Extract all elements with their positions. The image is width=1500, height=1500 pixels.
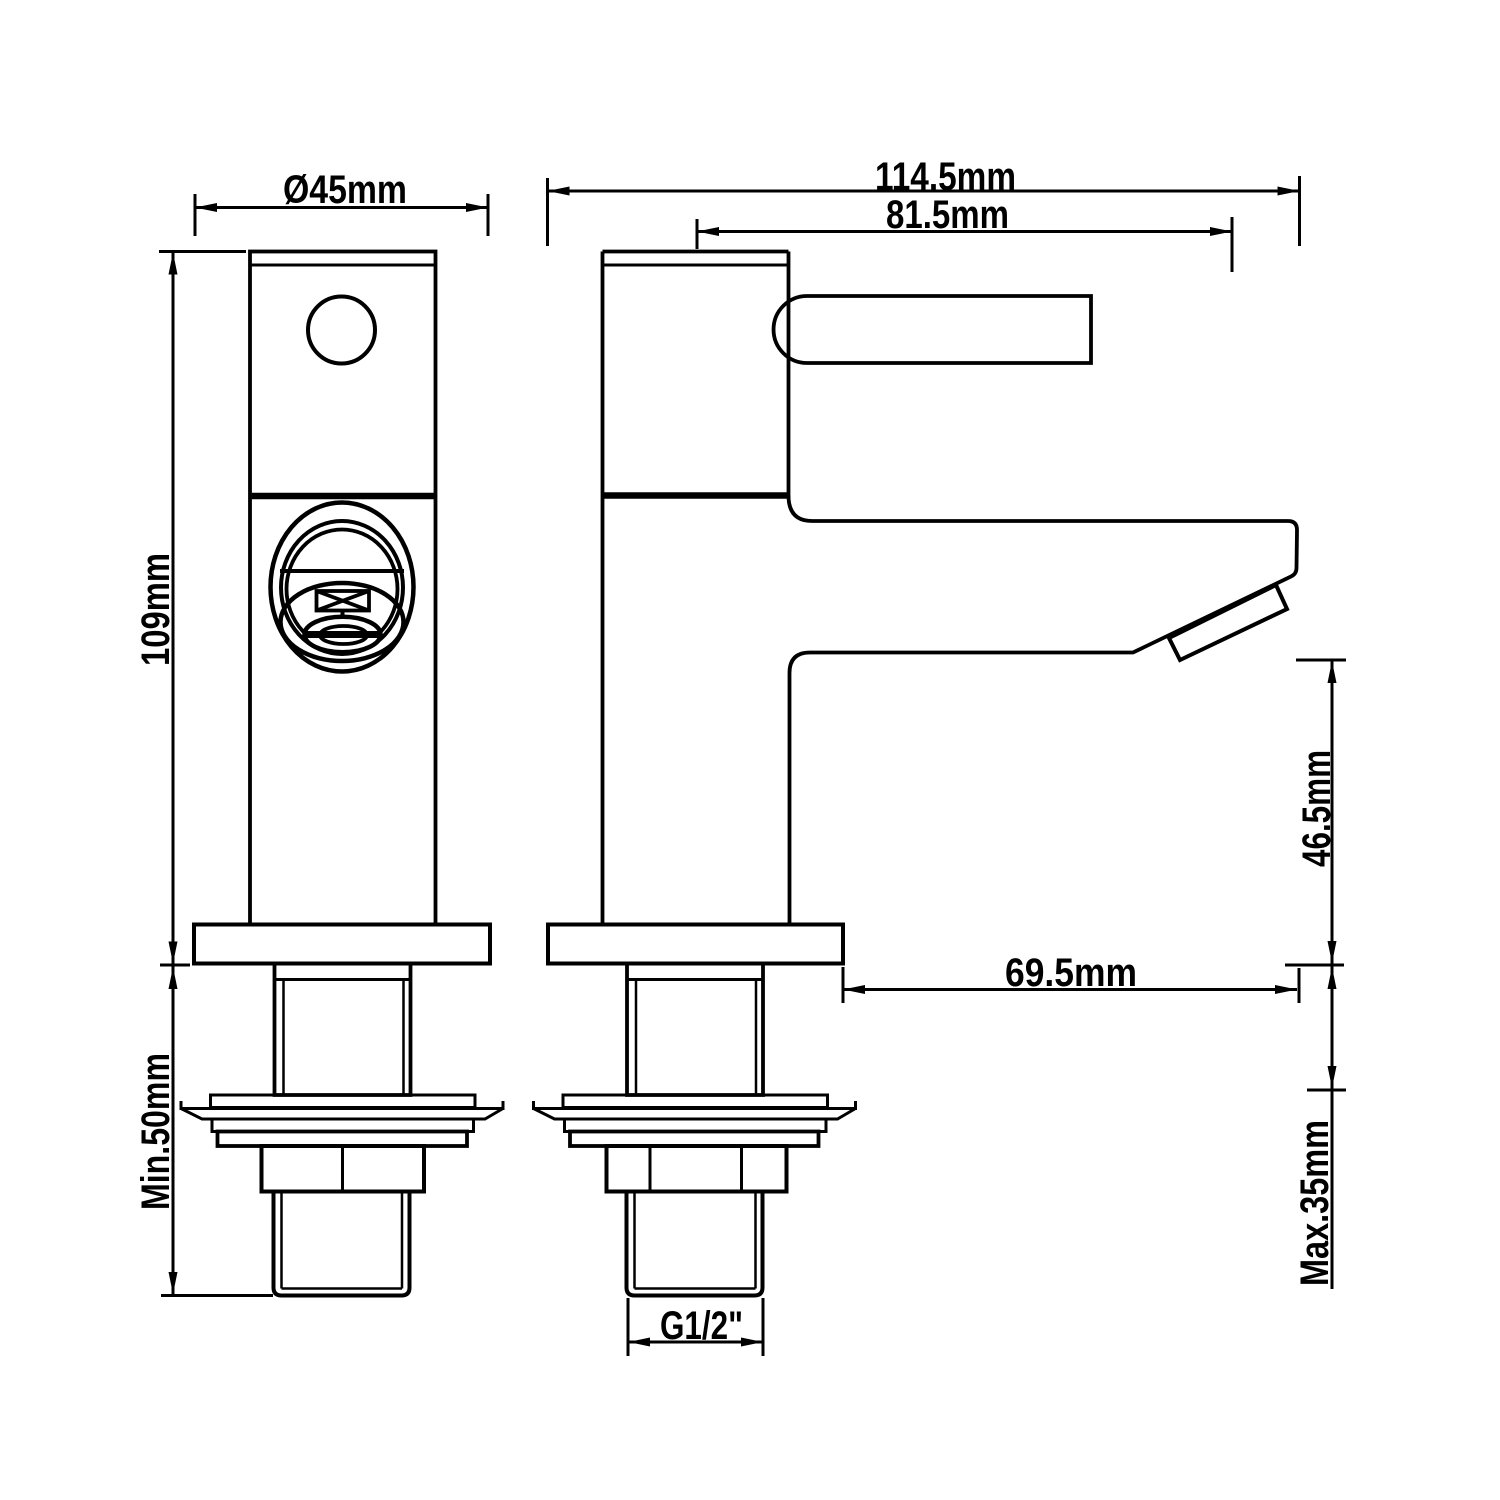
svg-text:Min.50mm: Min.50mm <box>134 1053 178 1210</box>
svg-text:81.5mm: 81.5mm <box>886 193 1009 237</box>
svg-text:Max.35mm: Max.35mm <box>1293 1120 1337 1286</box>
svg-text:46.5mm: 46.5mm <box>1295 750 1339 867</box>
svg-text:Ø45mm: Ø45mm <box>283 168 407 212</box>
svg-text:G1/2": G1/2" <box>660 1304 743 1348</box>
svg-text:69.5mm: 69.5mm <box>1005 951 1137 995</box>
svg-text:109mm: 109mm <box>134 553 178 666</box>
